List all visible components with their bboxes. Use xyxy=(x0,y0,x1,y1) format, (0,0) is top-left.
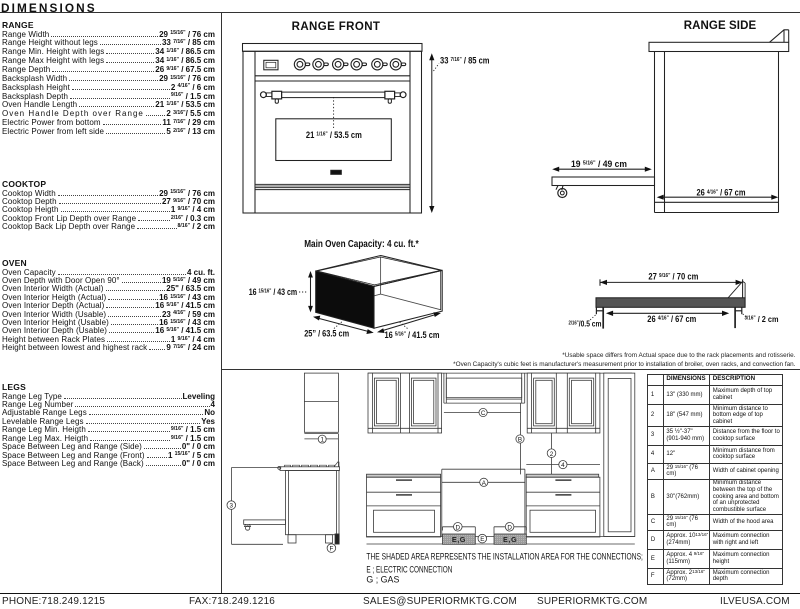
svg-text:33 7/16” / 85 cm: 33 7/16” / 85 cm xyxy=(440,55,490,65)
svg-text:3/16” / 2 cm: 3/16” / 2 cm xyxy=(745,314,779,324)
svg-text:3: 3 xyxy=(230,503,234,510)
svg-text:D: D xyxy=(456,524,461,531)
svg-text:D: D xyxy=(507,524,512,531)
svg-text:C: C xyxy=(481,410,486,417)
svg-text:2/16”/0.5 cm: 2/16”/0.5 cm xyxy=(569,319,602,329)
svg-text:16 5/16” / 41.5 cm: 16 5/16” / 41.5 cm xyxy=(385,330,440,340)
svg-text:F: F xyxy=(329,546,333,553)
svg-text:E: E xyxy=(480,536,484,543)
svg-text:19 5/16” / 49 cm: 19 5/16” / 49 cm xyxy=(571,159,627,169)
svg-text:16 15/16” / 43 cm: 16 15/16” / 43 cm xyxy=(249,287,298,297)
svg-text:E ; ELECTRIC CONNECTION: E ; ELECTRIC CONNECTION xyxy=(366,564,452,574)
svg-text:1: 1 xyxy=(320,437,324,444)
svg-text:21 1/16” / 53.5 cm: 21 1/16” / 53.5 cm xyxy=(306,130,362,140)
svg-text:THE SHADED AREA REPRESENTS THE: THE SHADED AREA REPRESENTS THE INSTALLAT… xyxy=(366,552,643,562)
svg-text:G ; GAS: G ; GAS xyxy=(366,575,399,585)
svg-text:E,G: E,G xyxy=(503,535,517,544)
svg-text:25” / 63.5 cm: 25” / 63.5 cm xyxy=(304,329,349,339)
svg-text:26 4/16” / 67 cm: 26 4/16” / 67 cm xyxy=(647,314,696,324)
svg-text:27 9/16” / 70 cm: 27 9/16” / 70 cm xyxy=(648,271,698,281)
svg-text:4: 4 xyxy=(561,462,565,469)
svg-text:E,G: E,G xyxy=(452,535,466,544)
svg-text:Main Oven Capacity: 4 cu. ft.*: Main Oven Capacity: 4 cu. ft.* xyxy=(304,238,419,250)
svg-text:2: 2 xyxy=(550,451,554,458)
svg-text:B: B xyxy=(518,437,522,444)
svg-text:26 4/16” / 67 cm: 26 4/16” / 67 cm xyxy=(697,188,746,198)
